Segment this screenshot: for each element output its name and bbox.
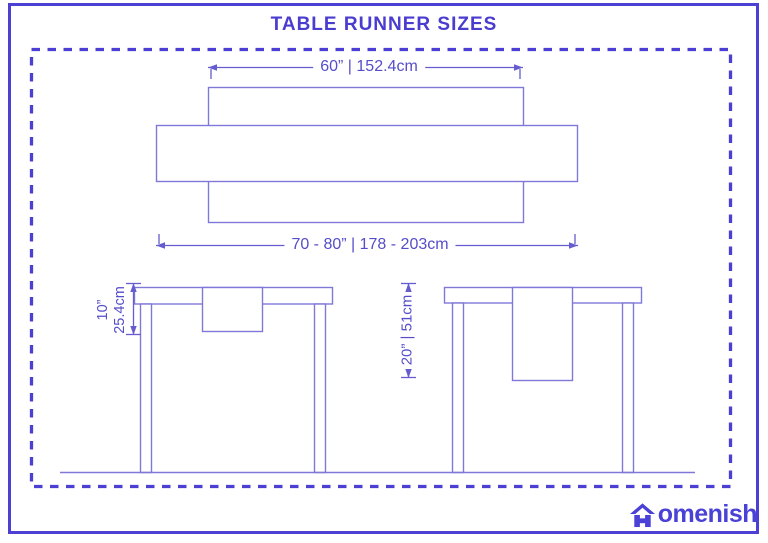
dim-label-runner-length: 70 - 80” | 178 - 203cm	[284, 236, 455, 254]
dim-arrow-up	[405, 283, 411, 292]
table-leg	[141, 304, 152, 473]
dim-arrow-down	[405, 369, 411, 378]
dim-arrow-right	[514, 64, 523, 70]
topview-runner-rect	[157, 126, 578, 182]
homenish-logo: omenish	[629, 500, 757, 529]
house-icon	[629, 501, 656, 528]
dim-arrow-right	[569, 242, 578, 248]
table-leg	[453, 303, 464, 473]
runner-drop-rect	[203, 288, 263, 332]
dim-label-table-length: 60” | 152.4cm	[313, 58, 425, 76]
dim-arrow-down	[130, 326, 136, 335]
dim-label-short-drop: 10” 25.4cm	[95, 286, 129, 334]
dim-label-long-drop: 20” | 51cm	[399, 295, 416, 366]
diagram-canvas	[0, 0, 768, 543]
runner-drop-rect	[513, 288, 573, 381]
logo-text: omenish	[658, 500, 757, 529]
sideview-long-table	[445, 288, 642, 473]
dim-arrow-left	[156, 242, 165, 248]
table-leg	[315, 304, 326, 473]
table-leg	[623, 303, 634, 473]
dim-arrow-left	[208, 64, 217, 70]
dim-label-short-drop-inches: 10”	[95, 286, 112, 334]
sideview-short-table	[135, 288, 333, 473]
dim-label-short-drop-cm: 25.4cm	[112, 286, 129, 334]
